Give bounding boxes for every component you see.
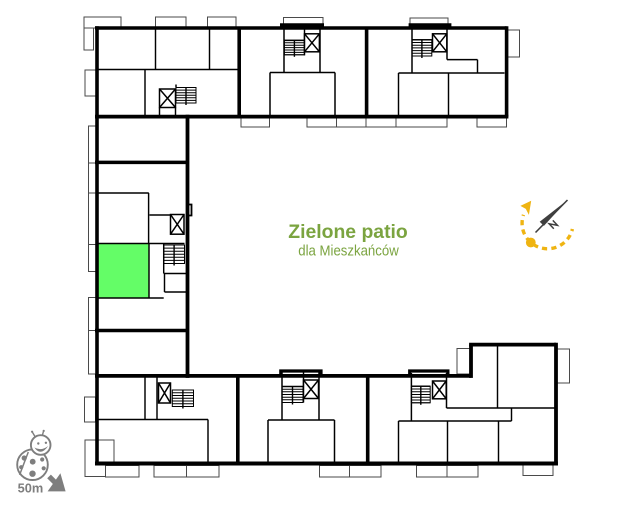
svg-text:50m: 50m (18, 481, 44, 496)
svg-text:dla Mieszkańców: dla Mieszkańców (298, 244, 399, 260)
svg-text:Zielone patio: Zielone patio (288, 221, 408, 243)
